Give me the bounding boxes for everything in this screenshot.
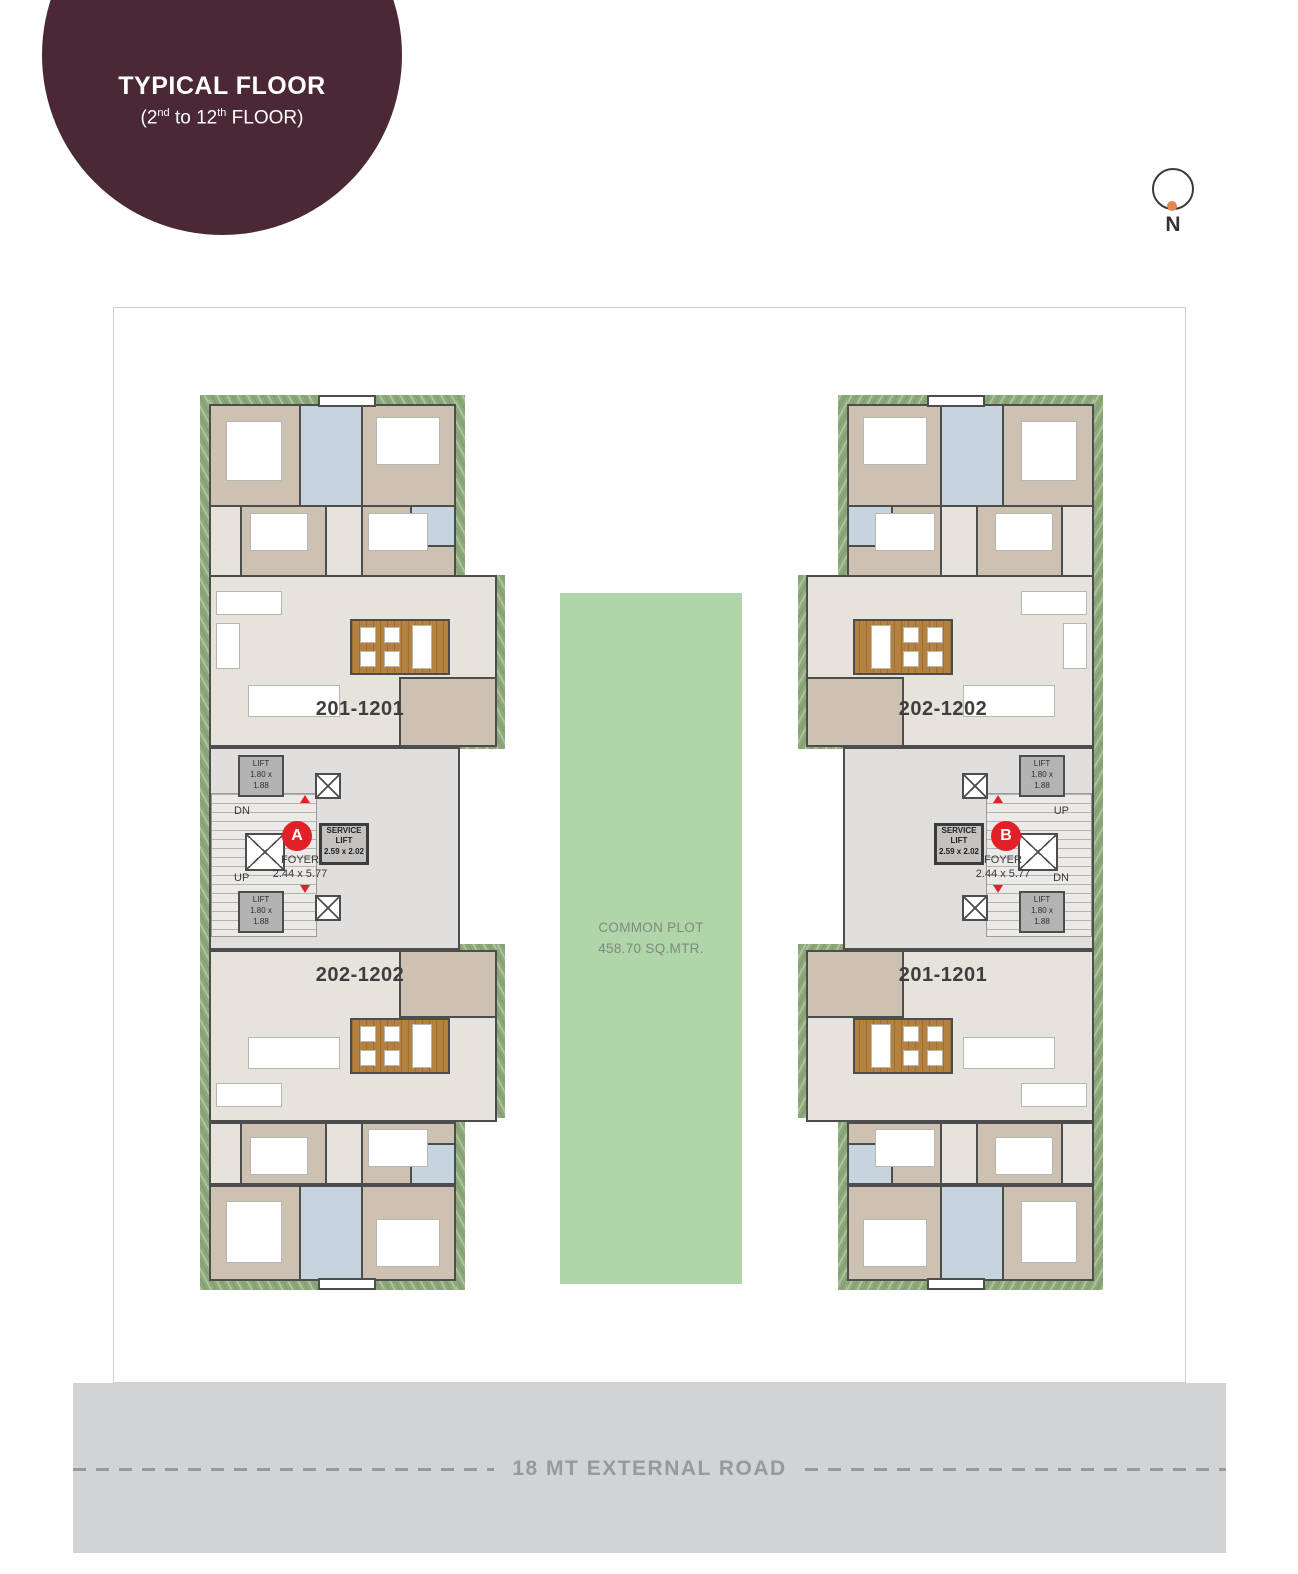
- page-subtitle: (2nd to 12th FLOOR): [42, 107, 402, 129]
- lift-label: LIFT 1.80 x 1.88: [1019, 755, 1065, 791]
- service-lift-line: LIFT: [934, 836, 984, 846]
- tower-a: 201-1201 202-1202 LIFT 1.80 x 1.88 LIFT …: [200, 395, 505, 1290]
- road-center-line: 18 MT EXTERNAL ROAD: [73, 1457, 1226, 1481]
- foyer-line: FOYER: [255, 853, 345, 867]
- north-indicator: N: [1152, 168, 1194, 237]
- north-dot-icon: [1167, 201, 1177, 211]
- service-lift-line: SERVICE: [934, 826, 984, 836]
- unit-label: 201-1201: [843, 964, 1043, 987]
- stair-direction-label: UP: [1029, 805, 1069, 817]
- lift-line: LIFT: [238, 759, 284, 770]
- north-label: N: [1152, 213, 1194, 237]
- unit-label: 202-1202: [843, 698, 1043, 721]
- lift-line: LIFT: [238, 895, 284, 906]
- common-plot-title: COMMON PLOT: [598, 918, 703, 939]
- lift-line: 1.80 x: [1019, 770, 1065, 781]
- road-dash: [73, 1468, 494, 1471]
- page-title: TYPICAL FLOOR: [42, 72, 402, 101]
- service-lift-line: LIFT: [319, 836, 369, 846]
- subtitle-part: (2: [141, 107, 158, 128]
- stair-direction-label: DN: [234, 805, 274, 817]
- lift-line: 1.88: [1019, 917, 1065, 928]
- subtitle-part: FLOOR): [226, 107, 303, 128]
- block-marker: B: [991, 821, 1021, 851]
- lift-line: 1.88: [238, 917, 284, 928]
- stair-direction-label: UP: [234, 872, 274, 884]
- north-circle-icon: [1152, 168, 1194, 210]
- common-plot-area: 458.70 SQ.MTR.: [598, 939, 704, 960]
- lift-line: 1.80 x: [238, 906, 284, 917]
- block-marker: A: [282, 821, 312, 851]
- direction-arrow-up: [300, 795, 310, 803]
- lift-line: 1.80 x: [238, 770, 284, 781]
- unit-label: 201-1201: [260, 698, 460, 721]
- floor-plan-page: TYPICAL FLOOR (2nd to 12th FLOOR) N COMM…: [0, 0, 1298, 1574]
- unit-label: 202-1202: [260, 964, 460, 987]
- tower-b: 202-1202 201-1201 LIFT 1.80 x 1.88 LIFT …: [798, 395, 1103, 1290]
- lift-line: LIFT: [1019, 895, 1065, 906]
- foyer-line: FOYER: [958, 853, 1048, 867]
- common-plot: COMMON PLOT 458.70 SQ.MTR.: [560, 593, 742, 1284]
- tower-a-labels: 201-1201 202-1202 LIFT 1.80 x 1.88 LIFT …: [200, 395, 505, 1290]
- lift-line: 1.88: [1019, 781, 1065, 792]
- direction-arrow-down: [993, 885, 1003, 893]
- direction-arrow-up: [993, 795, 1003, 803]
- stair-direction-label: DN: [1029, 872, 1069, 884]
- title-badge: TYPICAL FLOOR (2nd to 12th FLOOR): [42, 0, 402, 235]
- lift-label: LIFT 1.80 x 1.88: [238, 891, 284, 927]
- lift-line: LIFT: [1019, 759, 1065, 770]
- lift-line: 1.88: [238, 781, 284, 792]
- direction-arrow-down: [300, 885, 310, 893]
- lift-line: 1.80 x: [1019, 906, 1065, 917]
- subtitle-part: to 12: [170, 107, 218, 128]
- lift-label: LIFT 1.80 x 1.88: [1019, 891, 1065, 927]
- service-lift-line: SERVICE: [319, 826, 369, 836]
- external-road: 18 MT EXTERNAL ROAD: [73, 1383, 1226, 1553]
- road-dash: [805, 1468, 1226, 1471]
- road-label: 18 MT EXTERNAL ROAD: [494, 1457, 804, 1481]
- subtitle-sup: nd: [157, 107, 169, 119]
- tower-b-labels: 202-1202 201-1201 LIFT 1.80 x 1.88 LIFT …: [798, 395, 1103, 1290]
- lift-label: LIFT 1.80 x 1.88: [238, 755, 284, 791]
